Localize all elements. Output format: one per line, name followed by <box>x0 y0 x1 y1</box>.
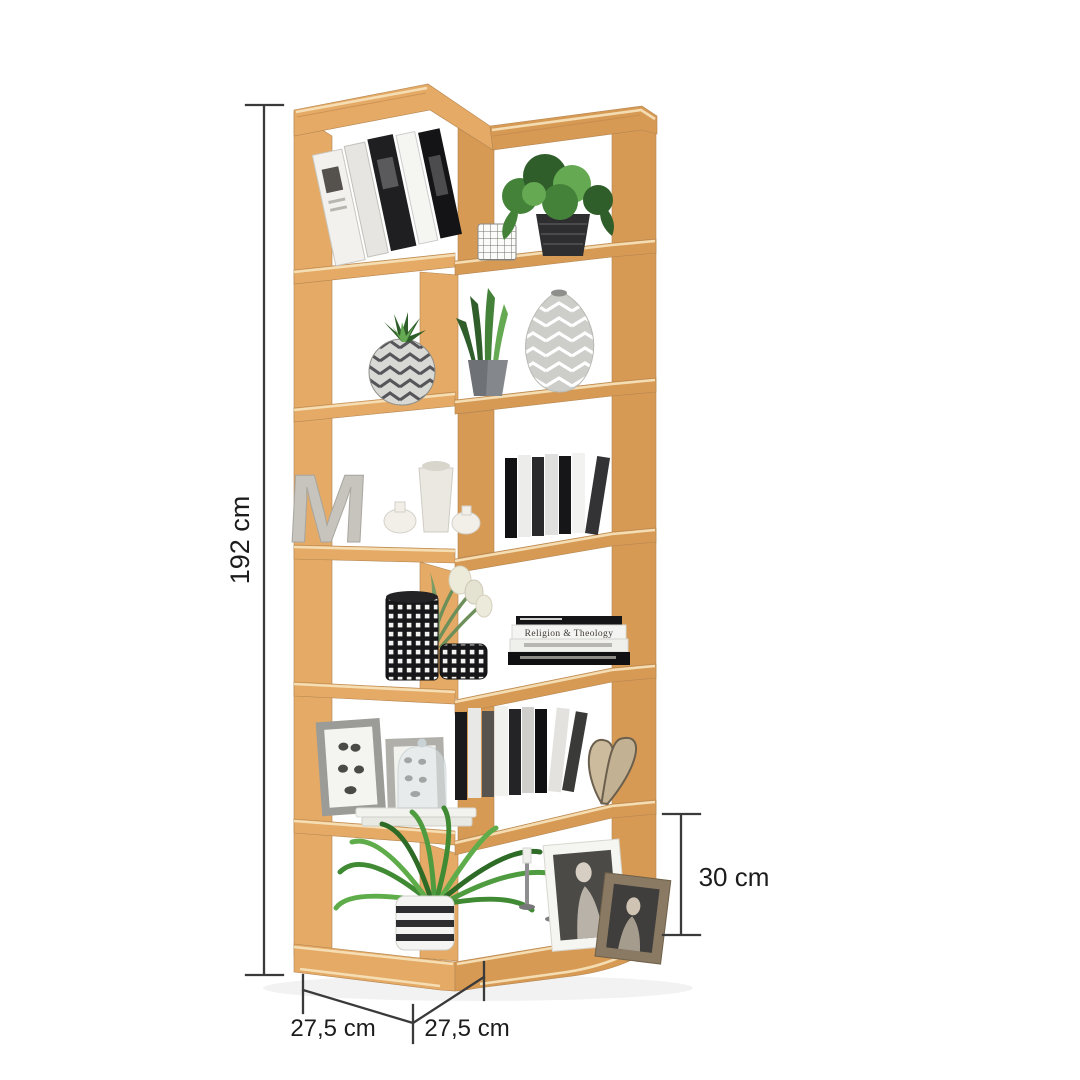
teardrop-vase <box>526 290 594 393</box>
leaning-books <box>312 124 463 265</box>
book-spine-text: Religion & Theology <box>525 629 614 639</box>
standing-books-row <box>505 453 610 538</box>
butterfly-frame-large <box>316 718 386 816</box>
corner-divider-level-3 <box>458 410 494 558</box>
checkered-vase <box>386 591 438 680</box>
shelf2-decor <box>369 288 594 405</box>
standing-books-row-2 <box>455 706 588 800</box>
depth-left-label: 27,5 cm <box>290 1015 375 1042</box>
depth-right-label: 27,5 cm <box>424 1015 509 1042</box>
potted-plant <box>502 154 614 256</box>
checkered-bowl <box>440 644 487 679</box>
striped-pot <box>396 896 454 950</box>
shelf-height-label: 30 cm <box>699 862 770 892</box>
letter-m-decor: M <box>284 454 370 563</box>
shelf-height-dimension-line <box>663 814 700 935</box>
bookshelf-scene: M <box>0 0 1080 1080</box>
snake-plant <box>456 288 508 396</box>
stacked-books: Religion & Theology <box>508 616 630 665</box>
portrait-frame-small <box>595 873 671 964</box>
product-image: M <box>0 0 1080 1080</box>
height-label: 192 cm <box>225 496 255 585</box>
